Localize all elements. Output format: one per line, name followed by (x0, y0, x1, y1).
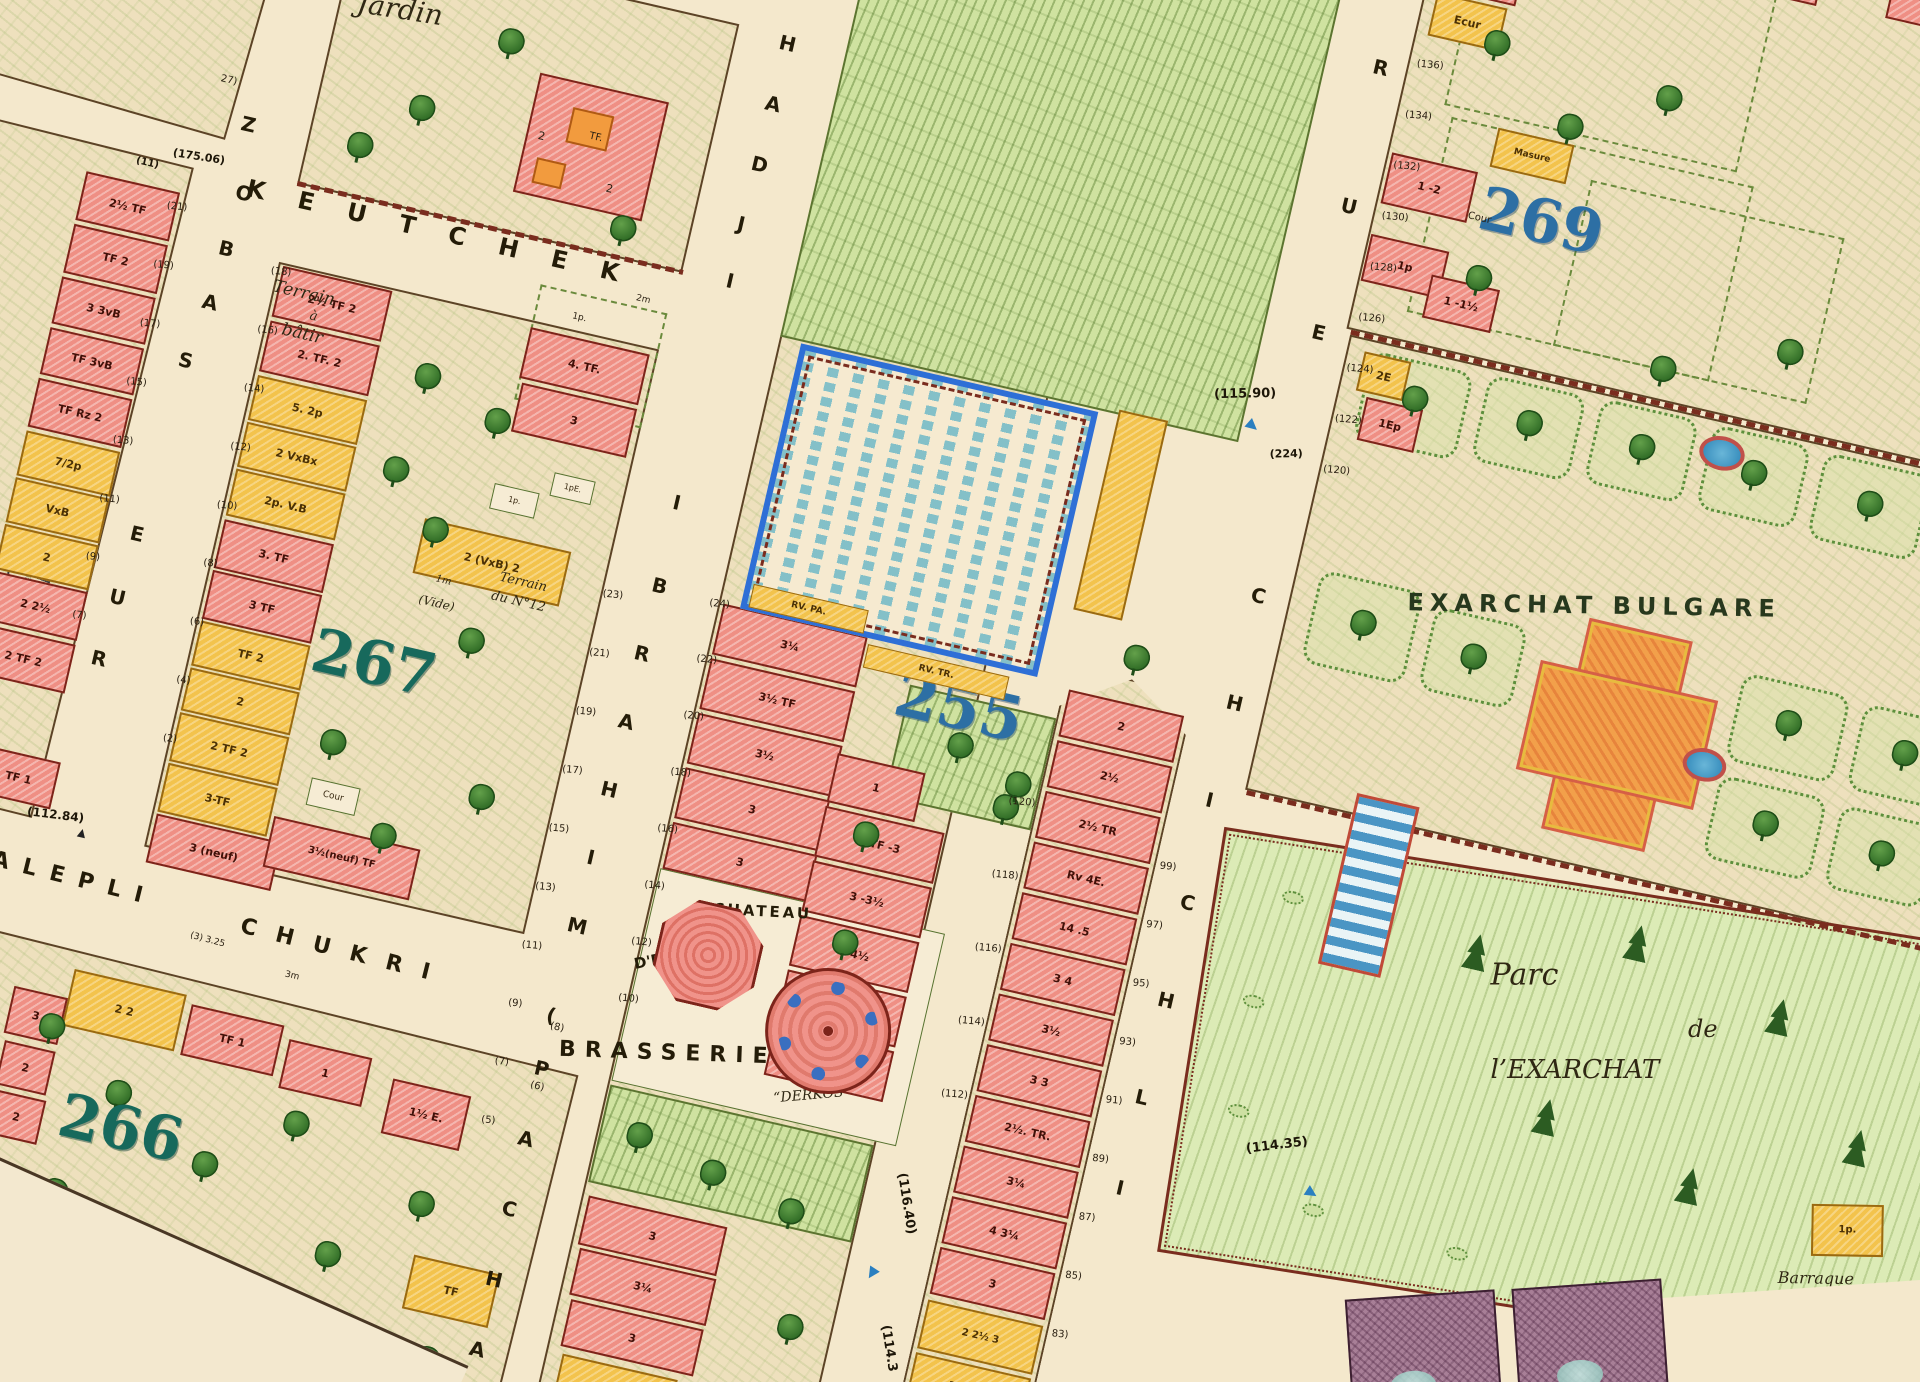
elevation-marker: (114.3 (879, 1324, 899, 1373)
garage-hall (1345, 1289, 1510, 1382)
num: (18) (270, 267, 291, 279)
street-letter: R (89, 647, 109, 670)
num: (16) (657, 824, 678, 836)
num: (3) 3.25 (189, 932, 226, 950)
num: 85) (1065, 1271, 1082, 1282)
num: (24) (709, 599, 730, 611)
num: (8) (203, 559, 218, 570)
elevation-marker: (112.84) (26, 805, 84, 824)
street-letter: A (200, 291, 220, 314)
num: (14) (243, 384, 264, 396)
tree (1121, 642, 1152, 673)
num: (6) (189, 617, 204, 628)
num: (11) (521, 940, 542, 952)
num: 95) (1132, 979, 1149, 990)
num: (16) (257, 325, 278, 337)
street-letter: A (763, 92, 783, 115)
num: (12) (631, 937, 652, 949)
num: (17) (139, 319, 160, 331)
street-letter: C (1178, 891, 1197, 914)
num: (4) (176, 675, 191, 686)
num: (21) (589, 648, 610, 660)
num: (14) (644, 880, 665, 892)
street-letter: H (1224, 691, 1245, 714)
street-letter: D (749, 153, 770, 176)
parc-label2: l’EXARCHAT (1490, 1057, 1659, 1083)
num: (22) (696, 654, 717, 666)
num: 99) (1159, 862, 1176, 873)
num: (13) (112, 435, 133, 447)
num: (116) (974, 943, 1002, 955)
num: 97) (1146, 920, 1163, 931)
num: (21) (166, 202, 187, 214)
num: (17) (562, 765, 583, 777)
num: 93) (1119, 1037, 1136, 1048)
street-letter: S (176, 349, 195, 372)
elev: (175.06) (172, 147, 226, 166)
flow-arrow: ▶ (1244, 416, 1263, 435)
hand: de (1688, 1017, 1718, 1041)
elev: (224) (1270, 448, 1303, 460)
street-letter: R (1371, 56, 1391, 79)
num: (19) (153, 260, 174, 272)
street-letter: Z (239, 113, 258, 136)
num: 89) (1092, 1154, 1109, 1165)
elevation-marker: (115.90) (1214, 387, 1276, 401)
num: (11) (99, 494, 120, 506)
num: 91) (1105, 1095, 1122, 1106)
bred: TF 1 (0, 745, 61, 809)
num: 3m (284, 971, 300, 983)
street-letter: I (724, 270, 736, 291)
elevation-marker: (116.40) (895, 1172, 918, 1235)
survey-arrow: ▲ (77, 826, 88, 839)
street-letter: B (650, 574, 669, 597)
street-letter: R (632, 642, 652, 665)
parc-label: Parc (1491, 960, 1559, 990)
num: (118) (991, 870, 1019, 882)
exarchat-label: EXARCHAT BULGARE (1407, 590, 1781, 621)
num: (13) (535, 882, 556, 894)
map-rotated-frame: RV. PA.RV. TR.1p.1EEcurMasure1 -21p1 -1½… (0, 0, 1920, 1382)
num: (7) (72, 610, 87, 621)
street-letter: I (1204, 789, 1216, 810)
num: 87) (1078, 1212, 1095, 1223)
street-letter: L (1133, 1086, 1150, 1108)
street-letter: E (1310, 321, 1328, 344)
map-canvas[interactable]: RV. PA.RV. TR.1p.1EEcurMasure1 -21p1 -1½… (0, 0, 1920, 1382)
num: (8) (549, 1022, 565, 1035)
street-name-alepli: ALEPLI (0, 849, 158, 911)
num: (10) (618, 993, 639, 1005)
num: (5) (481, 1115, 496, 1126)
num: (18) (670, 767, 691, 779)
num: (10) (216, 501, 237, 513)
num: (7) (494, 1057, 509, 1068)
num: (12) (230, 442, 251, 454)
num: (23) (602, 590, 623, 602)
block-northwest (0, 0, 330, 140)
street-letter: M (565, 914, 589, 938)
num: (9) (85, 552, 100, 563)
num: (114) (957, 1016, 985, 1028)
street-name-chukri: CHUKRI (238, 916, 452, 989)
num: (19) (575, 707, 596, 719)
num: (2) (162, 734, 177, 745)
num: (15) (548, 823, 569, 835)
num: (9) (508, 998, 523, 1009)
street-letter: H (1156, 989, 1177, 1012)
num: (20) (683, 711, 704, 723)
barraque-building: 1p. (1811, 1204, 1884, 1257)
num: 2m (635, 294, 651, 306)
flow-arrow: ▶ (863, 1265, 882, 1283)
street-letter: B (217, 237, 236, 260)
street-letter: I (1114, 1177, 1126, 1198)
street-letter: U (1339, 195, 1359, 218)
num: (15) (126, 377, 147, 389)
num: (112) (941, 1089, 969, 1101)
street-letter: A (616, 710, 636, 733)
num: 83) (1051, 1329, 1068, 1340)
street-letter: U (107, 586, 127, 609)
street-letter: E (128, 523, 146, 546)
brasserie-label: BRASSERIE (559, 1039, 777, 1069)
street-letter: I (671, 492, 683, 513)
street-letter: J (735, 213, 747, 234)
street-letter: H (599, 778, 620, 801)
street-letter: H (777, 32, 798, 55)
street-letter: C (1249, 584, 1268, 607)
street-letter: I (585, 847, 597, 868)
